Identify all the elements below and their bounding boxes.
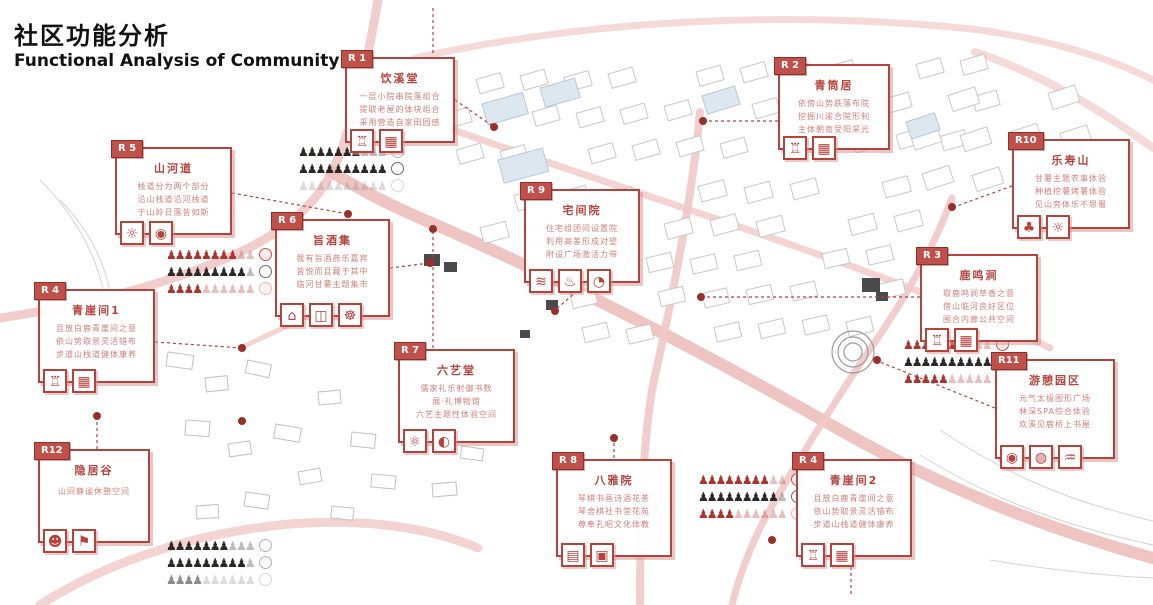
callout-line: 且放白鹿青崖间之意 <box>802 493 906 506</box>
callout-line: 住宅组团间设置院 <box>530 223 634 236</box>
callout-line: 临河甘薯主题集市 <box>281 279 384 292</box>
callout-tag: R 2 <box>774 57 806 75</box>
crowd-circle <box>259 265 272 278</box>
callout-line: 依山势取景灵活错布 <box>44 336 149 349</box>
callout-line: 儒家礼乐射御书数 <box>404 383 509 396</box>
crowd-figures-faint: ♟♟♟ <box>227 540 253 552</box>
crowd-circle <box>259 556 272 569</box>
callout-title: 隐居谷 <box>44 462 144 478</box>
crowd-circle <box>391 179 404 192</box>
crowd-row: ♟♟♟♟♟♟♟♟♟ ♟ <box>166 263 272 280</box>
crowd-circle <box>259 248 272 261</box>
callout-line: 见山旁体乐不思蜀 <box>1018 199 1124 212</box>
callout-r4-2: R 4 青崖间2 且放白鹿青崖间之意 依山势取景灵活错布 步道山栈道健体康养 ♖… <box>796 459 912 557</box>
callout-line: 元气太极图形广场 <box>1001 393 1109 406</box>
callout-title: 青筒居 <box>784 77 884 93</box>
callout-icons: ♖ ▦ <box>801 543 854 567</box>
callout-title: 饮溪堂 <box>351 70 449 86</box>
crowd-row: ♟♟♟♟♟♟♟♟♟♟ <box>298 177 404 194</box>
callout-tag: R10 <box>1008 132 1044 150</box>
callout-line: 种植挖薯烤薯体验 <box>1018 186 1124 199</box>
callout-r9: R 9 宅间院 住宅组团间设置院 利用高差形成对望 附设广场激活力带 ≋ ♨ ◔ <box>524 189 640 283</box>
spa-icon: ◍ <box>1029 445 1053 469</box>
crowd-figures: ♟♟♟♟ <box>166 283 201 295</box>
wine-jar-icon: ◫ <box>309 303 333 327</box>
fan-icon: ☸ <box>338 303 362 327</box>
callout-tag: R 3 <box>916 247 948 265</box>
screen-icon: ▣ <box>590 543 614 567</box>
callout-title: 鹿鸣涧 <box>926 267 1032 283</box>
callout-tag: R 4 <box>34 282 66 300</box>
callout-line: 主体朝南受阳采光 <box>784 124 884 137</box>
atom-icon: ⚛ <box>403 429 427 453</box>
crowd-figures: ♟♟♟♟♟♟♟♟ <box>166 249 236 261</box>
sun-icon: ☼ <box>120 221 144 245</box>
callout-line: 欢溪见鹿桥上书屋 <box>1001 419 1109 432</box>
callout-r11: R11 游憩园区 元气太极图形广场 林深SPA综合体验 欢溪见鹿桥上书屋 ◉ ◍… <box>995 359 1115 459</box>
callout-icons: ♣ ☼ <box>1017 215 1070 239</box>
crowd-figures: ♟♟♟♟ <box>166 574 201 586</box>
crowd-figures-faint: ♟ <box>245 557 254 569</box>
crowd-figures: ♟♟♟♟♟ <box>903 373 947 385</box>
callout-icons: ▤ ▣ <box>561 543 614 567</box>
callout-icons: ♖ ▦ <box>350 129 403 153</box>
callout-title: 青崖间2 <box>802 472 906 488</box>
camera-icon: ◉ <box>1000 445 1024 469</box>
crowd-figures-faint: ♟♟♟♟♟♟ <box>733 508 786 520</box>
callout-tag: R 5 <box>111 140 143 158</box>
callout-title: 旨酒集 <box>281 232 384 248</box>
callout-line: 利用高差形成对望 <box>530 236 634 249</box>
plate-icon: ◔ <box>587 269 611 293</box>
callout-icons: ♖ ▦ <box>783 136 836 160</box>
crowd-indicator: ♟♟♟♟♟♟♟ ♟♟♟ ♟♟♟♟♟♟♟♟♟ ♟ ♟♟♟♟ ♟♟♟♟♟♟ <box>166 537 272 588</box>
crowd-figures-faint: ♟ <box>777 491 786 503</box>
callout-r6: R 6 旨酒集 我有旨酒燕乐嘉宾 皆悦而且藏于其中 临河甘薯主题集市 ⌂ ◫ ☸ <box>275 219 390 317</box>
crowd-row: ♟♟♟♟ ♟♟♟♟♟♟ <box>698 505 804 522</box>
crowd-row: ♟♟♟♟♟♟♟♟♟ ♟ <box>698 488 804 505</box>
callout-icons: ☻ ⚑ <box>43 529 96 553</box>
callout-icons: ♖ ▦ <box>925 328 978 352</box>
sun-icon: ☼ <box>1046 215 1070 239</box>
callout-title: 六艺堂 <box>404 362 509 378</box>
callout-line: 琴棋书画诗酒花茶 <box>562 493 666 506</box>
callout-r12: R12 隐居谷 山间静谧休憩空间 ☻ ⚑ <box>38 449 150 543</box>
market-stall-icon: ⌂ <box>280 303 304 327</box>
crowd-row: ♟♟♟♟♟♟♟♟♟ ♟ <box>166 554 272 571</box>
crowd-figures-faint: ♟♟ <box>768 474 786 486</box>
crowd-row: ♟♟♟♟♟♟♟ ♟♟♟ <box>166 537 272 554</box>
callout-tag: R12 <box>34 442 70 460</box>
callout-line: 取鹿鸣涧草香之意 <box>926 288 1032 301</box>
callout-line: 林深SPA综合体验 <box>1001 406 1109 419</box>
callout-r10: R10 乐寿山 甘薯主题农事体验 种植挖薯烤薯体验 见山旁体乐不思蜀 ♣ ☼ <box>1012 139 1130 229</box>
lattice-icon: ▦ <box>379 129 403 153</box>
callout-line: 附设广场激活力带 <box>530 249 634 262</box>
lattice-icon: ▦ <box>954 328 978 352</box>
callout-icons: ⚛ ◐ <box>403 429 456 453</box>
crowd-figures-faint: ♟♟ <box>236 249 254 261</box>
callout-r5: R 5 山河道 栈道分为两个部分 沿山栈道沿河栈道 于山岭日落皆如斯 ☼ ◉ <box>115 147 232 235</box>
callout-line: 挖掘川渝合院形制 <box>784 111 884 124</box>
callout-icons: ≋ ♨ ◔ <box>529 269 611 293</box>
callout-r8: R 8 八雅院 琴棋书画诗酒花茶 琴舍棋社书堂花苑 尊奉孔昭文化体教 ▤ ▣ <box>556 459 672 557</box>
temple-icon: ♖ <box>350 129 374 153</box>
crowd-figures: ♟♟♟♟♟♟♟ <box>166 540 227 552</box>
callout-line: 我有旨酒燕乐嘉宾 <box>281 253 384 266</box>
lattice-icon: ▦ <box>72 369 96 393</box>
callout-r1: R 1 饮溪堂 一层小院串院落组合 提取老屋的体块组合 采用营造自家田园感 ♖ … <box>345 57 455 143</box>
callout-icons: ☼ ◉ <box>120 221 173 245</box>
callout-tag: R 6 <box>271 212 303 230</box>
callout-title: 游憩园区 <box>1001 372 1109 388</box>
callout-title: 山河道 <box>121 160 226 176</box>
crowd-indicator: ♟♟♟♟♟♟♟♟ ♟♟ ♟♟♟♟♟♟♟♟♟ ♟ ♟♟♟♟ ♟♟♟♟♟♟ <box>166 246 272 297</box>
callout-line: 甘薯主题农事体验 <box>1018 173 1124 186</box>
camera-icon: ◉ <box>149 221 173 245</box>
crowd-figures-faint: ♟♟♟♟♟♟ <box>201 574 254 586</box>
crowd-figures-faint: ♟♟♟♟♟ <box>947 373 991 385</box>
crowd-figures: ♟♟♟♟♟♟♟♟♟♟ <box>903 356 991 368</box>
crowd-circle <box>259 539 272 552</box>
panda-icon: ☻ <box>43 529 67 553</box>
title-chinese: 社区功能分析 <box>14 22 339 51</box>
crowd-row: ♟♟♟♟ ♟♟♟♟♟♟ <box>166 571 272 588</box>
temple-icon: ♖ <box>783 136 807 160</box>
callout-tag: R11 <box>991 352 1027 370</box>
abacus-icon: ▤ <box>561 543 585 567</box>
poster-canvas: 社区功能分析 Functional Analysis of Community … <box>0 0 1153 605</box>
callout-line: 采用营造自家田园感 <box>351 117 449 130</box>
callout-r2: R 2 青筒居 依傍山势跌落布院 挖掘川渝合院形制 主体朝南受阳采光 ♖ ▦ <box>778 64 890 150</box>
callout-line: 依傍山势跌落布院 <box>784 98 884 111</box>
callout-tag: R 4 <box>792 452 824 470</box>
crowd-indicator: ♟♟♟♟♟♟♟♟ ♟♟ ♟♟♟♟♟♟♟♟♟ ♟ ♟♟♟♟ ♟♟♟♟♟♟ <box>698 471 804 522</box>
callout-r4-1: R 4 青崖间1 且放白鹿青崖间之意 依山势取景灵活错布 步道山栈道健体康养 ♖… <box>38 289 155 383</box>
callout-r7: R 7 六艺堂 儒家礼乐射御书数 展·礼博物馆 六艺主题性体验空间 ⚛ ◐ <box>398 349 515 443</box>
callout-icons: ◉ ◍ ♒ <box>1000 445 1082 469</box>
crowd-figures: ♟♟♟♟♟♟♟♟♟ <box>166 557 245 569</box>
lattice-icon: ▦ <box>812 136 836 160</box>
crowd-figures: ♟♟♟♟ <box>698 508 733 520</box>
callout-icons: ⌂ ◫ ☸ <box>280 303 362 327</box>
tree-icon: ♣ <box>1017 215 1041 239</box>
callout-line: 皆悦而且藏于其中 <box>281 266 384 279</box>
callout-line: 沿山栈道沿河栈道 <box>121 194 226 207</box>
lattice-icon: ▦ <box>830 543 854 567</box>
crowd-figures: ♟♟♟♟♟♟♟♟♟ <box>166 266 245 278</box>
crowd-figures: ♟♟♟♟♟♟♟♟ <box>698 474 768 486</box>
callout-icons: ♖ ▦ <box>43 369 96 393</box>
callout-line: 一层小院串院落组合 <box>351 91 449 104</box>
crowd-row: ♟♟♟♟ ♟♟♟♟♟♟ <box>166 280 272 297</box>
crowd-circle <box>391 162 404 175</box>
callout-title: 八雅院 <box>562 472 666 488</box>
callout-line: 提取老屋的体块组合 <box>351 104 449 117</box>
callout-r3: R 3 鹿鸣涧 取鹿鸣涧草香之意 傍山临河良好区位 围合内廊公共空间 ♖ ▦ <box>920 254 1038 342</box>
callout-title: 乐寿山 <box>1018 152 1124 168</box>
callout-tag: R 8 <box>552 452 584 470</box>
moon-icon: ◐ <box>432 429 456 453</box>
fountain-icon: ♨ <box>558 269 582 293</box>
callout-title: 宅间院 <box>530 202 634 218</box>
temple-icon: ♖ <box>801 543 825 567</box>
crowd-circle <box>259 573 272 586</box>
callout-line: 尊奉孔昭文化体教 <box>562 519 666 532</box>
callout-line: 依山势取景灵活错布 <box>802 506 906 519</box>
callout-line: 山间静谧休憩空间 <box>44 486 144 499</box>
title-english: Functional Analysis of Community <box>14 51 339 72</box>
callout-line: 于山岭日落皆如斯 <box>121 207 226 220</box>
crowd-figures-faint: ♟♟♟♟♟♟ <box>201 283 254 295</box>
callout-tag: R 7 <box>394 342 426 360</box>
crowd-row: ♟♟♟♟♟ ♟♟♟♟♟ <box>903 370 1009 387</box>
callout-line: 围合内廊公共空间 <box>926 314 1032 327</box>
callout-title: 青崖间1 <box>44 302 149 318</box>
callout-line: 步道山栈道健体康养 <box>44 349 149 362</box>
crowd-row: ♟♟♟♟♟♟♟♟ ♟♟ <box>166 246 272 263</box>
signpost-icon: ⚑ <box>72 529 96 553</box>
crowd-circle <box>259 282 272 295</box>
crowd-figures: ♟♟♟♟♟♟♟♟♟♟ <box>298 163 386 175</box>
crowd-figures-faint: ♟♟♟♟♟♟♟♟♟♟ <box>298 180 386 192</box>
temple-icon: ♖ <box>43 369 67 393</box>
callout-line: 展·礼博物馆 <box>404 396 509 409</box>
crowd-figures: ♟♟♟♟♟♟♟♟♟ <box>698 491 777 503</box>
callout-line: 且放白鹿青崖间之意 <box>44 323 149 336</box>
temple-icon: ♖ <box>925 328 949 352</box>
callout-line: 琴舍棋社书堂花苑 <box>562 506 666 519</box>
signal-icon: ≋ <box>529 269 553 293</box>
callout-line: 步道山栈道健体康养 <box>802 519 906 532</box>
crowd-row: ♟♟♟♟♟♟♟♟♟♟ <box>298 160 404 177</box>
callout-line: 六艺主题性体验空间 <box>404 409 509 422</box>
callout-tag: R 9 <box>520 182 552 200</box>
callout-tag: R 1 <box>341 50 373 68</box>
callout-line: 傍山临河良好区位 <box>926 301 1032 314</box>
crowd-row: ♟♟♟♟♟♟♟♟ ♟♟ <box>698 471 804 488</box>
page-title: 社区功能分析 Functional Analysis of Community <box>14 22 339 72</box>
crowd-figures-faint: ♟ <box>245 266 254 278</box>
wind-icon: ♒ <box>1058 445 1082 469</box>
callout-line: 栈道分为两个部分 <box>121 181 226 194</box>
